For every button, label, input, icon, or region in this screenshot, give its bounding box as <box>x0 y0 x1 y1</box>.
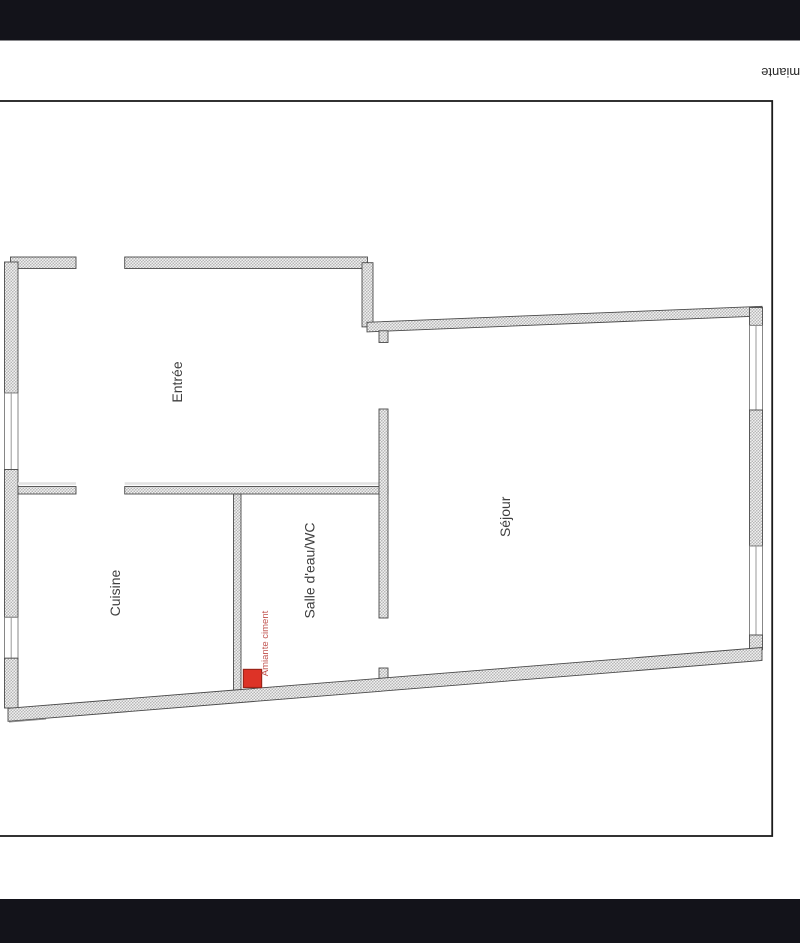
svg-text:Cuisine: Cuisine <box>107 569 123 616</box>
svg-text:Entrée: Entrée <box>169 361 185 402</box>
svg-text:Amiante: Amiante <box>761 65 800 80</box>
svg-text:Séjour: Séjour <box>497 496 513 537</box>
svg-text:Amiante ciment: Amiante ciment <box>260 610 271 676</box>
svg-text:Salle d'eau/WC: Salle d'eau/WC <box>302 522 318 618</box>
